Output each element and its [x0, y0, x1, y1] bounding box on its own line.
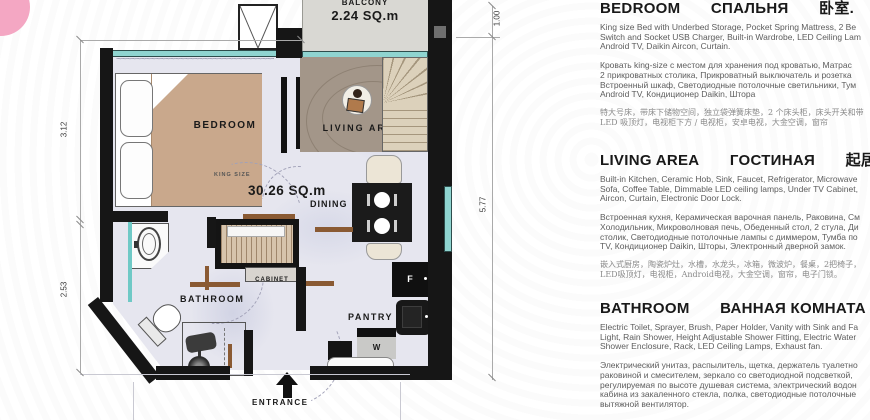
- living-text-zh: 嵌入式厨房，陶瓷炉灶，水槽，水龙头，冰箱，微波炉，餐桌，2把椅子， LED吸顶灯…: [600, 260, 870, 281]
- text-line: регулируемая по высоте душевая система, …: [600, 381, 870, 391]
- section-bedroom: BEDROOM СПАЛЬНЯ 卧室. King size Bed with U…: [600, 0, 870, 129]
- section-bathroom: BATHROOM ВАННАЯ КОМНАТА 浴室 Electric Toil…: [600, 297, 870, 410]
- dining-chair: [366, 155, 402, 184]
- bathroom-text-ru: Электрический унитаз, распылитель, щетка…: [600, 361, 870, 410]
- text-line: Встроенный шкаф, Светодиодные потолочные…: [600, 81, 870, 91]
- dim-left-upper: 3.12: [59, 122, 68, 138]
- entrance-label: ENTRANCE: [252, 398, 308, 407]
- heading-ru: ГОСТИНАЯ: [730, 152, 815, 169]
- tv-unit: [281, 77, 287, 153]
- bedroom-text-zh: 特大号床，带床下储物空间，独立袋弹簧床垫，2 个床头柜，床头开关和带 LED 吸…: [600, 108, 870, 129]
- entrance-arrow-stem: [283, 385, 292, 398]
- balcony-label: BALCONY: [302, 0, 428, 7]
- text-line: Android TV, Кондиционер Daikin, Штора: [600, 90, 870, 100]
- heading-ru: ВАННАЯ КОМНАТА: [720, 300, 866, 317]
- pillow: [120, 142, 153, 199]
- cutlery-icon: [367, 194, 370, 206]
- dimension-line-left: [80, 40, 81, 373]
- text-line: 特大号床，带床下储物空间，独立袋弹簧床垫，2 个床头柜，床头开关和带: [600, 108, 870, 119]
- text-line: Android TV, Daikin Aircon, Curtain.: [600, 42, 870, 52]
- text-line: столик, Светодиодные потолочные лампы с …: [600, 233, 870, 243]
- text-line: Electric Toilet, Sprayer, Brush, Paper H…: [600, 323, 870, 333]
- dimension-extension: [133, 382, 134, 420]
- cutlery-icon: [367, 220, 370, 232]
- floor-plan: BALCONY 2.24 SQ.m ~~~~~~~~~~~~~~~~~~~~~~…: [0, 0, 590, 420]
- washer-top: [357, 328, 396, 337]
- dining-chair: [366, 243, 402, 260]
- bedroom-text-en: King size Bed with Underbed Storage, Poc…: [600, 23, 870, 52]
- dimension-extension: [400, 382, 401, 420]
- floorplan-page: BALCONY 2.24 SQ.m ~~~~~~~~~~~~~~~~~~~~~~…: [0, 0, 870, 420]
- section-heading: LIVING AREA ГОСТИНАЯ 起居区: [600, 149, 870, 170]
- stair-treads: [383, 103, 427, 151]
- section-heading: BEDROOM СПАЛЬНЯ 卧室.: [600, 0, 870, 18]
- text-line: Холодильник, Микроволновая печь, Обеденн…: [600, 223, 870, 233]
- staircase: [382, 57, 428, 152]
- text-line: кабина из закаленного стекла, полка, све…: [600, 390, 870, 400]
- coffee-cup-icon: [353, 89, 362, 98]
- text-line: LED吸顶灯，电视柜，Android电视，大金空调，窗帘，电子门锁。: [600, 270, 870, 281]
- bathroom-label: BATHROOM: [180, 294, 244, 304]
- section-living-area: LIVING AREA ГОСТИНАЯ 起居区 Built-in Kitche…: [600, 149, 870, 281]
- fridge-handle: [424, 277, 427, 280]
- washer-label: W: [373, 343, 381, 352]
- text-line: раковиной и смесителем, зеркало со свето…: [600, 371, 870, 381]
- fridge: F: [392, 262, 428, 297]
- wall-bottom-left: [156, 366, 230, 380]
- bedroom-label: BEDROOM: [170, 120, 280, 131]
- dim-balcony-depth: 1.00: [492, 11, 501, 27]
- text-line: Light, Rain Shower, Height Adjustable Sh…: [600, 333, 870, 343]
- text-line: Встроенная кухня, Керамическая варочная …: [600, 213, 870, 223]
- window-detail-icon: [238, 4, 278, 50]
- text-line: Built-in Kitchen, Ceramic Hob, Sink, Fau…: [600, 175, 870, 185]
- wall-shower-right: [244, 330, 253, 376]
- heading-en: BEDROOM: [600, 0, 680, 17]
- wall-right-inset: [434, 26, 446, 38]
- dimension-line-right: [492, 6, 493, 380]
- heading-zh: 卧室.: [819, 0, 854, 17]
- window-detail-x: [240, 6, 276, 48]
- faucet-icon: [134, 241, 138, 248]
- wall-bathroom-top: [113, 211, 168, 222]
- dining-table: [352, 183, 412, 242]
- dining-window: [444, 186, 452, 252]
- text-line: Кровать king-size с местом для хранения …: [600, 61, 870, 71]
- bedroom-text-ru: Кровать king-size с местом для хранения …: [600, 61, 870, 100]
- dimension-line-bottom: [80, 374, 410, 375]
- heading-ru: СПАЛЬНЯ: [711, 0, 789, 17]
- place-setting: [374, 218, 390, 234]
- text-line: вытяжной вентилятор.: [600, 400, 870, 410]
- bathroom-mirror: [128, 222, 132, 302]
- text-line: 嵌入式厨房，陶瓷炉灶，水槽，水龙头，冰箱，微波炉，餐桌，2把椅子，: [600, 260, 870, 271]
- place-setting: [374, 192, 390, 208]
- heading-en: LIVING AREA: [600, 152, 699, 169]
- dim-left-lower: 2.53: [59, 282, 68, 298]
- pillow: [120, 80, 153, 137]
- wall-bathroom-stub: [207, 217, 216, 248]
- living-text-en: Built-in Kitchen, Ceramic Hob, Sink, Fau…: [600, 175, 870, 204]
- oven-door: [402, 306, 422, 328]
- stair-winders: [383, 58, 427, 103]
- wall-left: [100, 48, 113, 302]
- shower-slide-line: [224, 328, 225, 370]
- dimension-line-top: [80, 40, 302, 41]
- living-text-ru: Встроенная кухня, Керамическая варочная …: [600, 213, 870, 252]
- text-line: Switch and Socket USB Charger, Built-in …: [600, 33, 870, 43]
- coffee-tray-icon: [346, 98, 365, 113]
- cutlery-icon: [394, 220, 397, 232]
- bathroom-text-en: Electric Toilet, Sprayer, Brush, Paper H…: [600, 323, 870, 352]
- pantry-label: PANTRY: [348, 312, 393, 322]
- sink-basin-icon: [142, 233, 156, 255]
- text-line: Электрический унитаз, распылитель, щетка…: [600, 361, 870, 371]
- heading-en: BATHROOM: [600, 300, 690, 317]
- washer: W: [357, 337, 396, 359]
- door-leaf: [304, 281, 334, 286]
- curtain-left: ~~~~~~~~~~~~~~~~~~~~~~~~~~~~~~~~~~: [116, 56, 274, 63]
- wall-bath-right: [296, 267, 306, 331]
- balcony-area-label: 2.24 SQ.m: [302, 8, 428, 23]
- section-heading: BATHROOM ВАННАЯ КОМНАТА 浴室: [600, 297, 870, 318]
- text-line: King size Bed with Underbed Storage, Poc…: [600, 23, 870, 33]
- text-line: Aircon, Curtain, Electronic Door Lock.: [600, 194, 870, 204]
- fridge-label: F: [407, 274, 413, 284]
- wall-balcony-junction: [276, 28, 302, 58]
- dim-right-height: 5.77: [478, 197, 487, 213]
- text-line: TV, Кондиционер Daikin, Шторы, Электронн…: [600, 242, 870, 252]
- text-line: Shower Enclosure, Rack, LED Ceiling Lamp…: [600, 342, 870, 352]
- text-line: 2 прикроватных столика, Прикроватный вык…: [600, 71, 870, 81]
- text-line: Sofa, Coffee Table, Dimmable LED ceiling…: [600, 185, 870, 195]
- text-line: LED 吸顶灯，电视柜下方 / 电视柜，安卓电视，大金空调，窗帘: [600, 118, 870, 129]
- heading-zh: 起居区: [846, 152, 870, 169]
- cutlery-icon: [394, 194, 397, 206]
